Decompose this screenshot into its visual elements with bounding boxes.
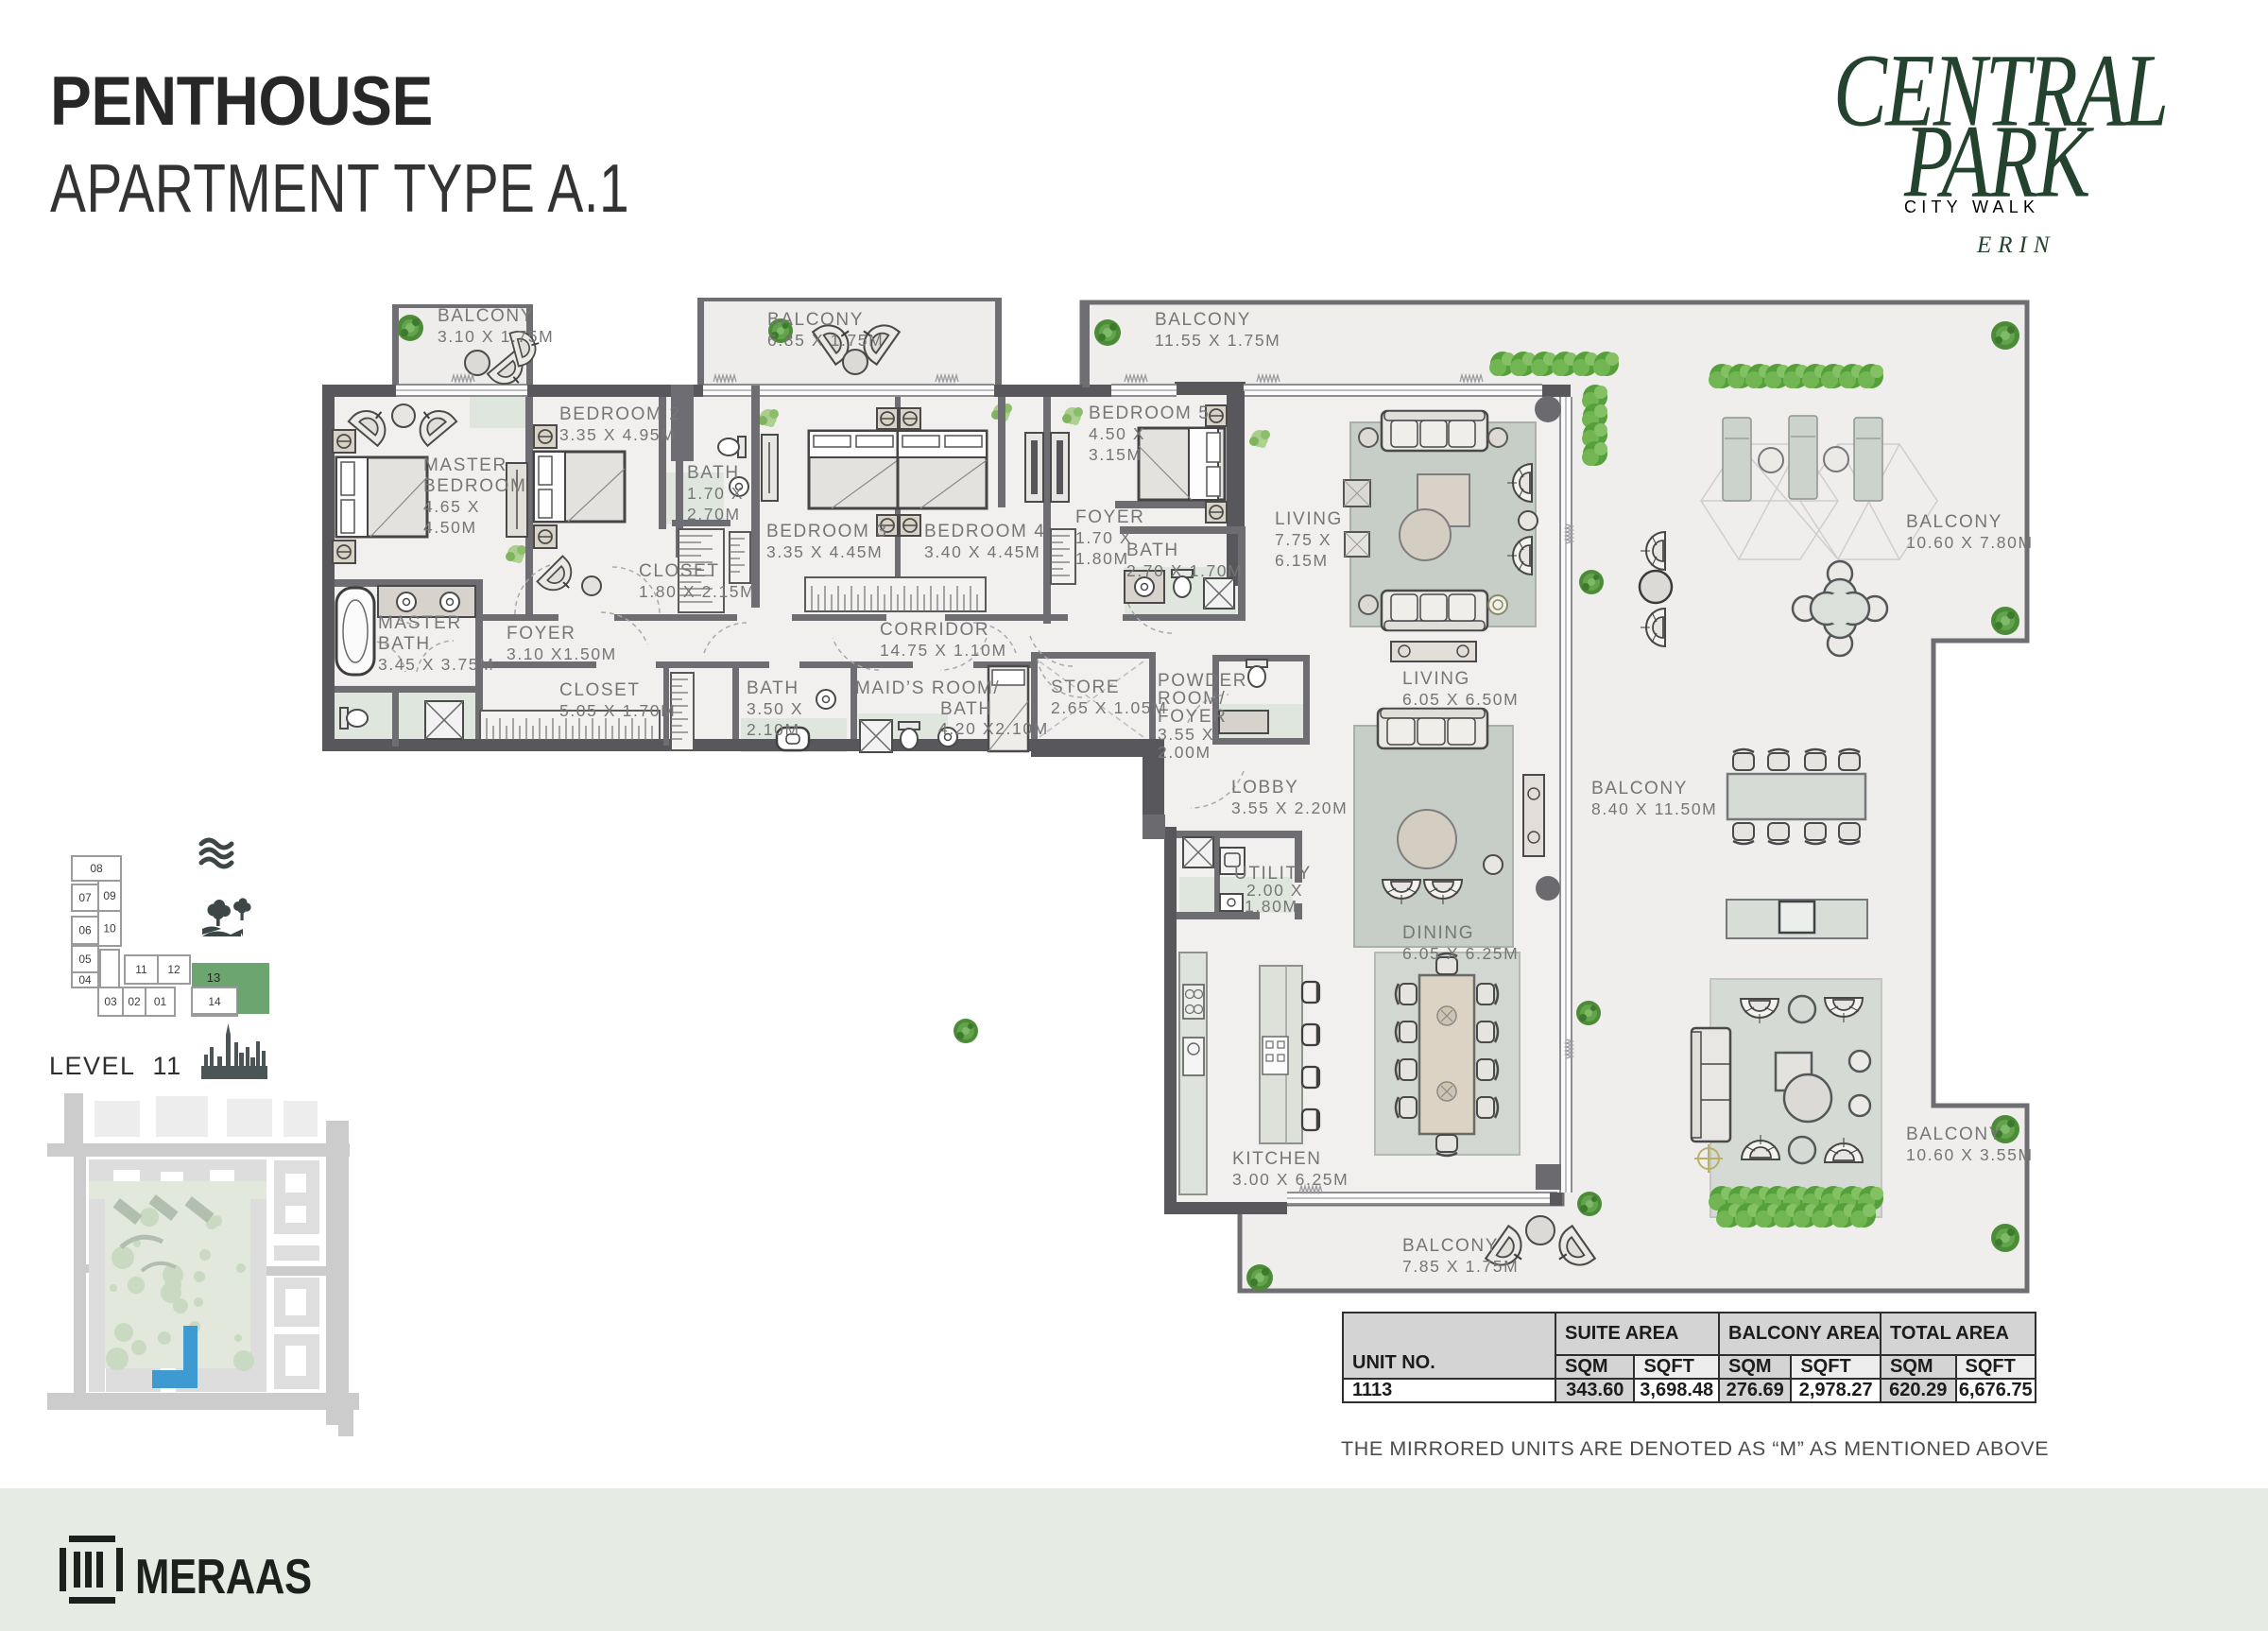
svg-text:LOBBY: LOBBY bbox=[1231, 778, 1298, 798]
svg-text:BEDROOM 2: BEDROOM 2 bbox=[559, 404, 680, 424]
svg-text:CLOSET: CLOSET bbox=[639, 561, 720, 581]
svg-text:3.40 X 4.45M: 3.40 X 4.45M bbox=[924, 542, 1040, 561]
svg-text:5.05 X 1.70M: 5.05 X 1.70M bbox=[559, 701, 676, 720]
svg-text:DINING: DINING bbox=[1402, 923, 1474, 943]
svg-text:BEDROOM 5: BEDROOM 5 bbox=[1089, 403, 1210, 423]
svg-text:LEVEL 11: LEVEL 11 bbox=[49, 1052, 182, 1080]
svg-text:MASTER: MASTER bbox=[378, 613, 462, 633]
svg-text:07: 07 bbox=[78, 891, 92, 904]
svg-text:CORRIDOR: CORRIDOR bbox=[880, 620, 989, 640]
svg-text:7.85 X 1.75M: 7.85 X 1.75M bbox=[1402, 1257, 1519, 1276]
svg-text:02: 02 bbox=[128, 995, 141, 1008]
svg-text:FOYER: FOYER bbox=[1075, 507, 1144, 527]
svg-text:6.85 X 1.75M: 6.85 X 1.75M bbox=[767, 331, 884, 350]
svg-text:2.00M: 2.00M bbox=[1158, 743, 1211, 762]
svg-text:05: 05 bbox=[78, 953, 92, 966]
svg-text:LIVING: LIVING bbox=[1275, 509, 1343, 529]
svg-text:CLOSET: CLOSET bbox=[559, 680, 641, 700]
svg-text:BATH: BATH bbox=[687, 463, 740, 483]
svg-text:2.70M: 2.70M bbox=[687, 505, 741, 524]
svg-text:BATH: BATH bbox=[940, 699, 993, 719]
svg-text:7.75 X: 7.75 X bbox=[1275, 530, 1332, 549]
svg-text:ROOM/: ROOM/ bbox=[1158, 689, 1226, 709]
svg-text:13: 13 bbox=[207, 970, 220, 985]
svg-text:POWDER: POWDER bbox=[1158, 671, 1247, 691]
svg-text:3.55 X 2.20M: 3.55 X 2.20M bbox=[1231, 798, 1348, 817]
svg-text:BEDROOM 4: BEDROOM 4 bbox=[924, 522, 1045, 541]
svg-text:BALCONY: BALCONY bbox=[1906, 1125, 2002, 1144]
svg-text:8.40 X 11.50M: 8.40 X 11.50M bbox=[1591, 799, 1717, 818]
svg-text:BATH: BATH bbox=[1126, 541, 1179, 560]
svg-text:3.35 X 4.45M: 3.35 X 4.45M bbox=[766, 542, 883, 561]
svg-text:1.80 X 2.15M: 1.80 X 2.15M bbox=[639, 582, 755, 601]
svg-text:03: 03 bbox=[104, 995, 117, 1008]
svg-text:10.60 X 7.80M: 10.60 X 7.80M bbox=[1906, 533, 2034, 552]
svg-text:3.00 X 6.25M: 3.00 X 6.25M bbox=[1232, 1170, 1349, 1189]
svg-text:01: 01 bbox=[154, 995, 167, 1008]
svg-text:FOYER: FOYER bbox=[507, 624, 576, 644]
svg-text:KITCHEN: KITCHEN bbox=[1232, 1149, 1322, 1169]
svg-text:14: 14 bbox=[208, 995, 221, 1008]
svg-text:1.70 X: 1.70 X bbox=[687, 484, 744, 503]
svg-text:BALCONY: BALCONY bbox=[1402, 1236, 1499, 1256]
svg-text:BATH: BATH bbox=[747, 678, 799, 698]
svg-text:11: 11 bbox=[135, 963, 147, 976]
svg-text:1.80M: 1.80M bbox=[1245, 897, 1298, 916]
svg-text:BALCONY: BALCONY bbox=[438, 306, 534, 326]
svg-text:3.35 X 4.95M: 3.35 X 4.95M bbox=[559, 425, 676, 444]
svg-text:4.50 X: 4.50 X bbox=[1089, 424, 1145, 443]
svg-text:BATH: BATH bbox=[378, 634, 431, 654]
svg-text:10.60 X 3.55M: 10.60 X 3.55M bbox=[1906, 1145, 2034, 1164]
svg-text:FOYER: FOYER bbox=[1158, 707, 1227, 727]
svg-text:3.10 X 1.75M: 3.10 X 1.75M bbox=[438, 327, 554, 346]
svg-text:09: 09 bbox=[103, 889, 116, 902]
svg-text:08: 08 bbox=[90, 862, 103, 875]
svg-text:10: 10 bbox=[103, 922, 116, 936]
svg-text:BEDROOM: BEDROOM bbox=[423, 476, 526, 496]
svg-text:6.05 X 6.25M: 6.05 X 6.25M bbox=[1402, 944, 1519, 963]
svg-text:BALCONY: BALCONY bbox=[1591, 779, 1688, 798]
svg-text:1.80M: 1.80M bbox=[1075, 549, 1129, 568]
svg-text:LIVING: LIVING bbox=[1402, 669, 1470, 689]
svg-text:04: 04 bbox=[78, 973, 92, 987]
svg-text:3.55 X: 3.55 X bbox=[1158, 725, 1214, 744]
svg-text:3.15M: 3.15M bbox=[1089, 445, 1143, 464]
svg-text:3.10 X1.50M: 3.10 X1.50M bbox=[507, 644, 617, 663]
svg-text:STORE: STORE bbox=[1051, 678, 1120, 697]
svg-text:BALCONY: BALCONY bbox=[1906, 512, 2002, 532]
svg-text:MASTER: MASTER bbox=[423, 455, 507, 475]
svg-text:2.65 X 1.05M: 2.65 X 1.05M bbox=[1051, 698, 1167, 717]
svg-text:6.15M: 6.15M bbox=[1275, 551, 1329, 570]
svg-text:3.45 X 3.75M: 3.45 X 3.75M bbox=[378, 655, 494, 674]
svg-text:14.75 X 1.10M: 14.75 X 1.10M bbox=[880, 641, 1007, 660]
svg-text:BALCONY: BALCONY bbox=[1155, 310, 1251, 330]
svg-text:4.65 X: 4.65 X bbox=[423, 497, 480, 516]
svg-text:BEDROOM 3: BEDROOM 3 bbox=[766, 522, 887, 541]
svg-text:2.70 X 1.70M: 2.70 X 1.70M bbox=[1126, 561, 1243, 580]
svg-text:06: 06 bbox=[78, 924, 92, 937]
svg-text:2.10M: 2.10M bbox=[747, 720, 800, 739]
svg-text:1.70 X: 1.70 X bbox=[1075, 528, 1132, 547]
svg-text:11.55 X 1.75M: 11.55 X 1.75M bbox=[1155, 331, 1280, 350]
svg-text:6.05 X 6.50M: 6.05 X 6.50M bbox=[1402, 690, 1519, 709]
svg-text:4.50M: 4.50M bbox=[423, 518, 477, 537]
svg-text:BALCONY: BALCONY bbox=[767, 310, 864, 330]
svg-text:4.20 X2.10M: 4.20 X2.10M bbox=[938, 719, 1049, 738]
svg-text:MAID’S ROOM/: MAID’S ROOM/ bbox=[855, 678, 1000, 698]
svg-text:12: 12 bbox=[167, 963, 180, 976]
svg-text:3.50 X: 3.50 X bbox=[747, 699, 803, 718]
